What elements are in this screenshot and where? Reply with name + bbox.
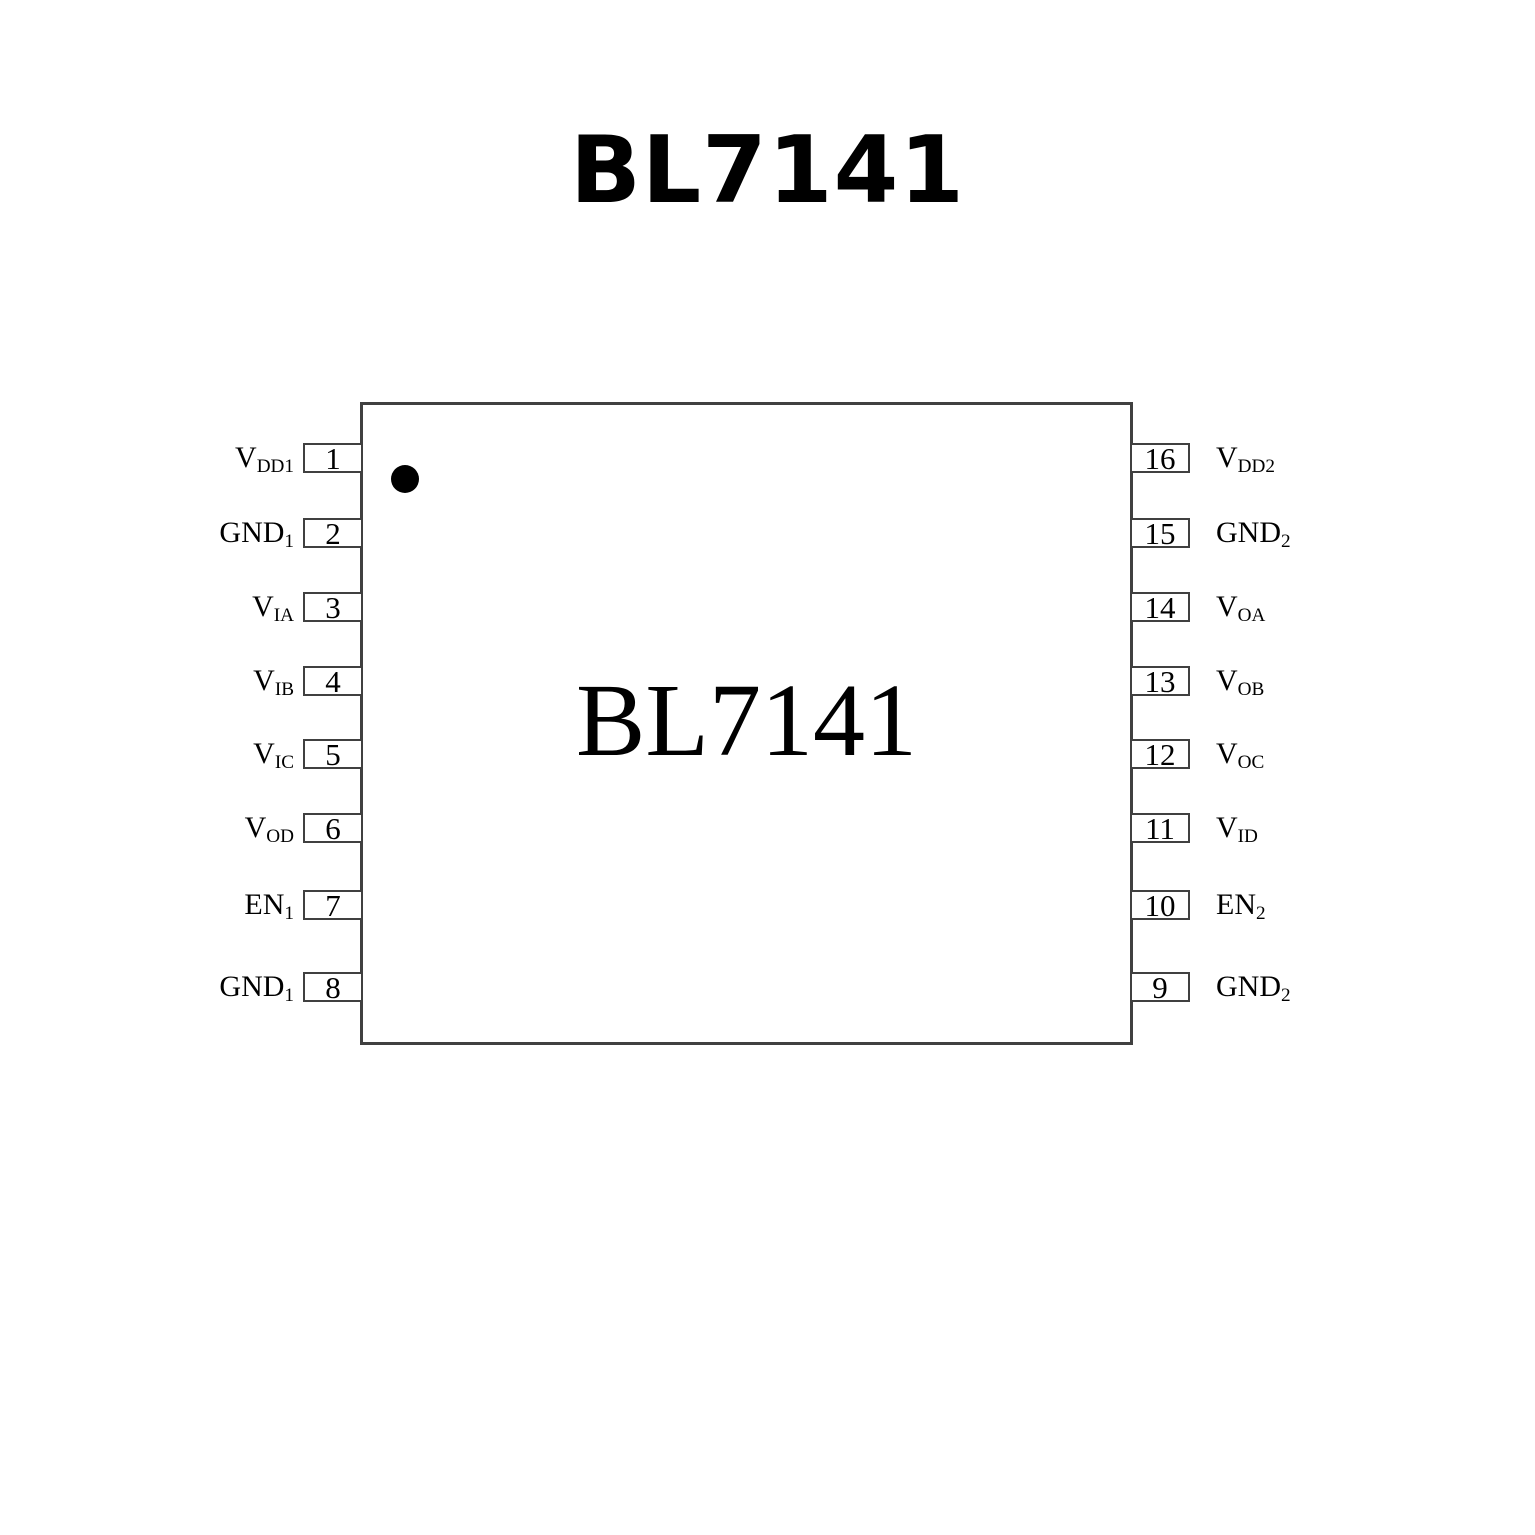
pin-row-1: VDD1 1 [0, 443, 363, 473]
pin-number-box-15: 15 [1130, 518, 1190, 548]
pin-label-10: EN2 [1216, 890, 1266, 920]
pin-number-box-2: 2 [303, 518, 363, 548]
pin-label-1: VDD1 [235, 443, 294, 473]
pin-number-box-12: 12 [1130, 739, 1190, 769]
pin-row-7: EN1 7 [0, 890, 363, 920]
pin-number-box-5: 5 [303, 739, 363, 769]
pin1-marker-dot [391, 465, 419, 493]
pin-number-box-9: 9 [1130, 972, 1190, 1002]
chip-body: BL7141 [360, 402, 1133, 1045]
pin-number-box-13: 13 [1130, 666, 1190, 696]
pin-row-16: 16 VDD2 [1130, 443, 1535, 473]
pin-label-8: GND1 [219, 972, 294, 1002]
pin-row-8: GND1 8 [0, 972, 363, 1002]
pin-row-12: 12 VOC [1130, 739, 1535, 769]
pin-row-5: VIC 5 [0, 739, 363, 769]
pin-row-13: 13 VOB [1130, 666, 1535, 696]
pin-number-box-11: 11 [1130, 813, 1190, 843]
pin-label-2: GND1 [219, 518, 294, 548]
pin-label-16: VDD2 [1216, 443, 1275, 473]
pin-number-box-8: 8 [303, 972, 363, 1002]
pin-label-11: VID [1216, 813, 1258, 843]
page-title: BL7141 [0, 116, 1535, 224]
pin-label-6: VOD [245, 813, 294, 843]
pin-number-box-4: 4 [303, 666, 363, 696]
chip-label: BL7141 [576, 669, 917, 773]
pin-number-box-3: 3 [303, 592, 363, 622]
pin-label-12: VOC [1216, 739, 1264, 769]
pin-number-box-6: 6 [303, 813, 363, 843]
pin-row-14: 14 VOA [1130, 592, 1535, 622]
pin-number-box-1: 1 [303, 443, 363, 473]
pin-number-box-10: 10 [1130, 890, 1190, 920]
pin-row-4: VIB 4 [0, 666, 363, 696]
pin-row-6: VOD 6 [0, 813, 363, 843]
pin-row-11: 11 VID [1130, 813, 1535, 843]
pin-label-3: VIA [252, 592, 294, 622]
pin-number-box-7: 7 [303, 890, 363, 920]
pin-label-15: GND2 [1216, 518, 1291, 548]
pinout-diagram-page: { "page_title": "BL7141", "chip": { "lab… [0, 0, 1535, 1535]
pin-label-13: VOB [1216, 666, 1264, 696]
pin-label-9: GND2 [1216, 972, 1291, 1002]
pin-number-box-14: 14 [1130, 592, 1190, 622]
pin-label-4: VIB [253, 666, 294, 696]
pin-row-10: 10 EN2 [1130, 890, 1535, 920]
pin-number-box-16: 16 [1130, 443, 1190, 473]
pin-row-2: GND1 2 [0, 518, 363, 548]
pin-row-9: 9 GND2 [1130, 972, 1535, 1002]
pin-row-3: VIA 3 [0, 592, 363, 622]
pin-row-15: 15 GND2 [1130, 518, 1535, 548]
pin-label-5: VIC [253, 739, 294, 769]
pin-label-7: EN1 [244, 890, 294, 920]
pin-label-14: VOA [1216, 592, 1265, 622]
